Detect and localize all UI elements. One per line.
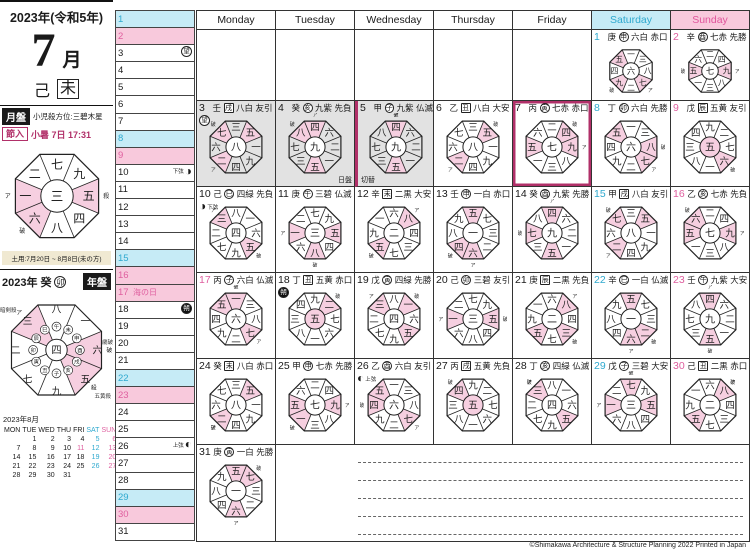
svg-text:一: 一 [231, 294, 241, 305]
copyright-text: ©Shimakawa Architecture & Structure Plan… [530, 542, 746, 549]
svg-text:七: 七 [706, 66, 714, 76]
mini-cal-day: 15 [21, 453, 37, 462]
svg-text:五: 五 [705, 334, 715, 345]
svg-text:三: 三 [626, 401, 636, 412]
svg-text:一: 一 [448, 314, 458, 325]
day-branch-badge: 寅 [382, 275, 392, 285]
svg-text:六: 六 [324, 127, 334, 139]
date-strip-row: 11 [115, 182, 195, 199]
svg-text:二: 二 [245, 501, 255, 512]
mini-calendar-table: MONTUEWEDTHUFRISATSUN1234567891011121314… [3, 426, 117, 480]
date-strip-row: 14 [115, 233, 195, 250]
svg-text:四: 四 [626, 248, 636, 259]
setsu-label: 節入 [2, 127, 28, 141]
day-branch-badge: 卯 [619, 103, 629, 113]
day-branch-badge: 申 [461, 189, 471, 199]
memo-area [276, 445, 750, 542]
svg-text:二: 二 [11, 345, 21, 356]
svg-text:ア: ア [312, 113, 317, 119]
svg-text:九: 九 [217, 328, 227, 340]
svg-text:二: 二 [627, 83, 635, 92]
mini-cal-day: 31 [56, 471, 72, 480]
day-cell-11: 11庚午三碧仏滅七九五四八六一二三破ア [276, 187, 355, 273]
svg-text:一: 一 [627, 50, 635, 59]
svg-text:四: 四 [231, 162, 241, 173]
new-moon-icon: 朔 [278, 287, 289, 298]
date-strip-number: 12 [118, 202, 130, 213]
day-cell-9: 9戊辰五黄友引九二七六一八三四五破 [671, 101, 750, 187]
day-cell-24: 24癸未八白赤口三五一九四二六七八破ア [197, 359, 276, 445]
svg-text:九: 九 [245, 414, 255, 426]
date-strip-row: 21 [115, 353, 195, 370]
svg-text:ア: ア [414, 426, 419, 432]
svg-text:六: 六 [626, 333, 636, 345]
svg-text:破: 破 [493, 121, 498, 128]
svg-text:九: 九 [612, 156, 622, 168]
svg-text:七: 七 [640, 300, 650, 311]
day-cell-31: 31庚寅一白先勝五七三二六四八九一破ア [197, 445, 276, 542]
svg-text:九: 九 [310, 142, 320, 154]
svg-text:四: 四 [606, 142, 616, 153]
mini-cal-day: 2 [37, 435, 55, 444]
svg-text:破: 破 [290, 425, 295, 432]
svg-text:五: 五 [217, 300, 227, 311]
moon-phase-badge: ◐上弦 [357, 373, 376, 384]
moon-phase-label: 下弦 [207, 203, 218, 211]
nine-star-octagon: 八一六五九七二三四破ア [360, 285, 428, 353]
svg-text:一: 一 [290, 228, 300, 239]
svg-text:三: 三 [640, 128, 650, 139]
nine-star-octagon: 三五一九四二六七八破ア [439, 113, 507, 181]
svg-text:一: 一 [533, 300, 543, 311]
date-strip-number: 17 [118, 287, 130, 298]
svg-text:九: 九 [705, 121, 715, 133]
mini-cal-day: 24 [56, 462, 72, 471]
svg-text:七: 七 [454, 128, 464, 139]
day-cell-19: 19戊寅四緑先勝八一六五九七二三四破ア [355, 273, 434, 359]
year-board-header: 2023年 癸 卯 年盤 [2, 273, 111, 290]
holiday-name: 海の日 [133, 287, 157, 298]
svg-text:三: 三 [375, 300, 385, 311]
svg-text:破: 破 [290, 121, 295, 128]
saiha-label: 歳破 [102, 338, 113, 346]
nine-star-octagon: 七九五四八六一二三破ア [439, 285, 507, 353]
svg-text:七: 七 [389, 248, 399, 259]
svg-text:破: 破 [211, 121, 216, 128]
svg-text:三: 三 [533, 243, 543, 254]
day-branch-badge: 未 [224, 361, 234, 371]
day-branch-badge: 寅 [540, 103, 550, 113]
svg-text:一: 一 [296, 415, 306, 426]
svg-text:破: 破 [360, 402, 364, 409]
day-cell-22: 22辛巳一白仏滅五七三二六四八九一破ア [592, 273, 671, 359]
svg-text:六: 六 [705, 379, 715, 391]
date-strip-number: 22 [118, 373, 130, 384]
date-strip-row: 8 [115, 131, 195, 148]
svg-text:二: 二 [217, 157, 227, 168]
svg-text:九: 九 [73, 167, 85, 181]
mini-cal-day: 4 [72, 435, 85, 444]
svg-text:九: 九 [324, 213, 334, 225]
date-strip-number: 8 [118, 133, 130, 144]
svg-text:二: 二 [626, 162, 636, 173]
month-kanji: 月 [62, 45, 81, 72]
svg-text:破: 破 [256, 253, 261, 260]
svg-text:六: 六 [482, 414, 492, 426]
day-cell-25: 25甲申七赤先勝二四九八三一五六七破ア [276, 359, 355, 445]
svg-text:午: 午 [54, 322, 60, 330]
svg-text:八: 八 [50, 221, 62, 235]
date-strip-row: 9 [115, 148, 195, 165]
day-branch-badge: 亥 [303, 103, 313, 113]
svg-text:四: 四 [391, 122, 401, 133]
nine-star-octagon: 二四九八三一五六七破ア [518, 113, 586, 181]
nine-star-octagon: 二四九八三一五六七破ア [676, 199, 744, 267]
svg-text:四: 四 [389, 315, 399, 326]
mini-cal-day: 18 [72, 453, 85, 462]
svg-text:九: 九 [245, 156, 255, 168]
last-quarter-moon-icon: ◑ [199, 201, 206, 212]
svg-text:六: 六 [567, 399, 577, 411]
svg-text:五: 五 [310, 162, 320, 173]
svg-text:二: 二 [640, 329, 650, 340]
moon-phase-label: 上弦 [173, 441, 184, 449]
svg-text:七: 七 [50, 158, 62, 172]
date-strip-row: 3望 [115, 45, 195, 62]
svg-text:六: 六 [389, 400, 399, 412]
mini-cal-day: 9 [37, 444, 55, 453]
svg-text:五: 五 [468, 401, 478, 412]
empty-day-cell [434, 30, 513, 101]
svg-text:四: 四 [640, 415, 650, 426]
svg-text:三: 三 [719, 415, 729, 426]
svg-text:八: 八 [719, 243, 729, 254]
date-strip-number: 2 [118, 31, 130, 42]
day-branch-badge: 午 [303, 189, 313, 199]
svg-text:三: 三 [290, 314, 300, 325]
memo-dashed-line [358, 516, 743, 517]
nine-star-octagon: 一三八七二九四五六破ア [602, 42, 660, 100]
svg-text:九: 九 [527, 313, 537, 325]
svg-text:四: 四 [691, 128, 701, 139]
nine-star-octagon: 二四九八三一五六七破ア [681, 42, 739, 100]
date-strip-number: 23 [118, 390, 130, 401]
svg-text:一: 一 [19, 189, 31, 203]
svg-text:六: 六 [719, 156, 729, 168]
date-strip-number: 30 [118, 509, 130, 520]
svg-text:九: 九 [685, 399, 695, 411]
mini-cal-day: 28 [3, 471, 21, 480]
date-strip-row: 15 [115, 250, 195, 267]
empty-day-cell [197, 30, 276, 101]
year-board-year: 2023年 [2, 274, 37, 290]
svg-text:八: 八 [231, 401, 241, 412]
svg-text:四: 四 [482, 329, 492, 340]
weekday-header-wednesday: Wednesday [355, 11, 434, 30]
svg-text:六: 六 [694, 54, 702, 64]
svg-text:破: 破 [518, 230, 522, 237]
svg-text:六: 六 [211, 399, 221, 411]
day-branch-badge: 戌 [461, 361, 471, 371]
moon-phase-badge: 朔 [181, 303, 192, 314]
svg-text:三: 三 [706, 83, 714, 92]
svg-text:六: 六 [691, 213, 701, 225]
svg-text:破: 破 [681, 68, 685, 75]
svg-text:ア: ア [527, 380, 532, 386]
next-month-mini-calendar: 2023年8月 MONTUEWEDTHUFRISATSUN12345678910… [3, 414, 110, 480]
svg-text:八: 八 [468, 334, 478, 345]
nine-star-octagon: 三五一九四二六七八破ア [202, 371, 270, 439]
date-strip-number: 25 [118, 424, 130, 435]
svg-text:三: 三 [403, 386, 413, 397]
day-branch-badge: 酉 [698, 32, 708, 42]
svg-text:一: 一 [81, 316, 91, 327]
svg-text:六: 六 [409, 313, 419, 325]
svg-text:七: 七 [217, 243, 227, 254]
svg-text:一: 一 [310, 334, 320, 345]
svg-text:九: 九 [389, 333, 399, 345]
svg-text:二: 二 [454, 157, 464, 168]
date-strip-number: 20 [118, 338, 130, 349]
day-branch-badge: 丑 [698, 361, 708, 371]
mini-cal-day [72, 471, 85, 480]
svg-text:二: 二 [705, 208, 715, 219]
svg-text:二: 二 [706, 50, 714, 59]
svg-text:一: 一 [691, 243, 701, 254]
nine-star-octagon: 四六二一五三七八九破ア [362, 113, 430, 181]
svg-text:卯: 卯 [30, 346, 35, 354]
kirikae-caption-left: 日盤 [338, 175, 352, 185]
svg-text:二: 二 [211, 228, 221, 239]
svg-text:ア: ア [707, 285, 712, 291]
svg-text:六: 六 [231, 505, 241, 517]
empty-day-cell [355, 30, 434, 101]
svg-text:未: 未 [66, 326, 72, 334]
day-branch-badge: 亥 [698, 189, 708, 199]
date-strip-row: 12 [115, 199, 195, 216]
svg-text:八: 八 [251, 314, 261, 325]
svg-text:五: 五 [245, 243, 255, 254]
svg-text:五: 五 [245, 128, 255, 139]
svg-text:八: 八 [389, 294, 399, 305]
moon-phase-badge: 望 [181, 46, 192, 57]
date-strip-number: 11 [118, 184, 130, 195]
svg-text:九: 九 [52, 385, 62, 397]
day-cell-1: 1庚申六白赤口一三八七二九四五六破ア [592, 30, 671, 101]
svg-text:九: 九 [547, 228, 557, 240]
day-branch-badge: 酉 [540, 189, 550, 199]
svg-text:一: 一 [245, 214, 255, 225]
divider [0, 269, 113, 270]
date-strip-row: 29 [115, 490, 195, 507]
svg-text:四: 四 [567, 314, 577, 325]
svg-text:三: 三 [468, 122, 478, 133]
svg-text:六: 六 [211, 141, 221, 153]
svg-text:二: 二 [310, 380, 320, 391]
svg-text:三: 三 [310, 229, 320, 240]
date-strip-row: 17海の日 [115, 285, 195, 302]
svg-text:三: 三 [403, 243, 413, 254]
svg-text:二: 二 [411, 142, 421, 153]
svg-text:七: 七 [547, 334, 557, 345]
svg-text:七: 七 [725, 142, 735, 153]
svg-text:酉: 酉 [77, 347, 83, 354]
svg-text:一: 一 [705, 162, 715, 173]
svg-text:破: 破 [730, 167, 735, 174]
date-strip-number: 18 [118, 304, 130, 315]
date-strip-number: 26 [118, 441, 130, 452]
svg-text:九: 九 [390, 142, 400, 154]
nine-star-octagon: 六八四三七五九一二破ア [360, 199, 428, 267]
weekday-header-friday: Friday [513, 11, 592, 30]
svg-text:五: 五 [533, 329, 543, 340]
svg-text:二: 二 [389, 420, 399, 431]
month-stem: 己 [34, 77, 50, 101]
date-strip-number: 10 [118, 167, 130, 178]
svg-text:五: 五 [689, 67, 697, 76]
svg-text:破: 破 [503, 316, 507, 323]
svg-text:七: 七 [640, 157, 650, 168]
svg-text:六: 六 [627, 66, 635, 76]
svg-text:五: 五 [330, 228, 340, 239]
svg-text:ア: ア [740, 231, 744, 237]
day-branch-badge: 戌 [224, 103, 234, 113]
svg-text:二: 二 [324, 300, 334, 311]
day-cell-23: 23壬午九紫大安四六二一五三七八九破ア [671, 273, 750, 359]
date-strip-row: 23 [115, 387, 195, 404]
svg-text:五: 五 [626, 294, 636, 305]
svg-text:破: 破 [628, 371, 633, 377]
svg-text:一: 一 [626, 122, 636, 133]
weekday-header-saturday: Saturday [592, 11, 671, 30]
date-strip-number: 27 [118, 458, 130, 469]
day-branch-badge: 未 [382, 189, 392, 199]
mini-cal-day: 17 [56, 453, 72, 462]
mini-cal-day: 19 [85, 453, 100, 462]
svg-text:五: 五 [527, 142, 537, 153]
svg-text:七: 七 [612, 214, 622, 225]
svg-text:三: 三 [468, 315, 478, 326]
day-cell-12: 12辛未二黒大安六八四三七五九一二破ア [355, 187, 434, 273]
svg-text:七: 七 [290, 142, 300, 153]
day-branch-badge: 亥 [540, 361, 550, 371]
date-strip-row: 10下弦◑ [115, 165, 195, 182]
svg-text:八: 八 [561, 157, 571, 168]
svg-text:破: 破 [233, 285, 238, 291]
mini-cal-header: FRI [72, 426, 85, 435]
svg-text:三: 三 [646, 314, 656, 325]
day-cell-29: 29戊子三碧大安七九五四八六一二三破ア [592, 359, 671, 445]
day-cell-20: 20己卯三碧友引七九五四八六一二三破ア [434, 273, 513, 359]
svg-text:七: 七 [705, 228, 715, 240]
svg-text:三: 三 [245, 300, 255, 311]
svg-text:一: 一 [375, 214, 385, 225]
svg-text:九: 九 [468, 379, 478, 391]
svg-text:二: 二 [296, 214, 306, 225]
date-strip-number: 3 [118, 48, 130, 59]
svg-text:七: 七 [468, 294, 478, 305]
svg-text:破: 破 [106, 346, 112, 354]
svg-text:三: 三 [251, 486, 261, 497]
svg-text:三: 三 [231, 380, 241, 391]
svg-text:九: 九 [725, 227, 735, 239]
svg-text:五: 五 [640, 214, 650, 225]
svg-text:四: 四 [547, 401, 557, 412]
mini-cal-day: 22 [21, 462, 37, 471]
svg-text:殺: 殺 [103, 192, 109, 200]
svg-text:五: 五 [375, 243, 385, 254]
svg-text:二: 二 [527, 400, 537, 411]
day-cell-10: 10己巳四緑先負◑下弦八一六五九七二三四破ア [197, 187, 276, 273]
svg-text:五: 五 [310, 315, 320, 326]
svg-text:三: 三 [217, 214, 227, 225]
svg-text:五: 五 [691, 415, 701, 426]
day-cell-6: 6乙丑八白大安三五一九四二六七八破ア [434, 101, 513, 187]
moon-phase-label: 下弦 [173, 167, 184, 175]
kosatsu-note: 小児殺方位:三碧木星 [33, 111, 103, 122]
moon-phase-badge: 上弦◐ [173, 439, 192, 450]
day-branch-badge: 子 [385, 103, 394, 113]
svg-text:破: 破 [448, 379, 453, 386]
svg-text:一: 一 [468, 229, 478, 240]
mini-cal-day: 16 [37, 453, 55, 462]
svg-text:破: 破 [609, 87, 614, 94]
mini-cal-day: 1 [21, 435, 37, 444]
day-branch-badge: 巳 [224, 189, 234, 199]
svg-text:九: 九 [217, 471, 227, 483]
last-quarter-moon-icon: ◑ [185, 166, 192, 177]
svg-text:五: 五 [231, 466, 241, 477]
svg-text:六: 六 [612, 414, 622, 426]
date-strip-row: 13 [115, 216, 195, 233]
mini-calendar-title: 2023年8月 [3, 414, 110, 425]
nine-star-octagon: 四六二一五三七八九破ア [281, 113, 349, 181]
new-moon-icon: 朔 [181, 303, 192, 314]
day-branch-badge: 寅 [224, 447, 234, 457]
date-strip-number: 5 [118, 82, 130, 93]
mini-cal-day: 25 [72, 462, 85, 471]
mini-cal-header: WED [37, 426, 55, 435]
date-strip-number: 15 [118, 253, 130, 264]
svg-text:二: 二 [725, 314, 735, 325]
svg-text:五: 五 [612, 128, 622, 139]
day-cell-2: 2辛酉七赤先勝二四九八三一五六七破ア [671, 30, 750, 101]
ankensatsu-label: 暗剣殺 [0, 306, 17, 314]
svg-text:破: 破 [414, 293, 419, 300]
svg-text:三: 三 [310, 420, 320, 431]
nine-star-octagon: 九二七六一八三四五破 [676, 113, 744, 181]
nine-star-octagon: 四六二一五三七八九破ア [676, 285, 744, 353]
moon-phase-badge: 下弦◑ [173, 166, 192, 177]
svg-text:六: 六 [626, 142, 636, 154]
svg-text:五: 五 [646, 400, 656, 411]
svg-text:三: 三 [626, 208, 636, 219]
svg-text:七: 七 [639, 79, 647, 88]
date-strip-row: 7 [115, 114, 195, 131]
svg-text:八: 八 [719, 386, 729, 397]
svg-text:二: 二 [547, 122, 557, 133]
date-strip-row: 2 [115, 28, 195, 45]
svg-text:四: 四 [547, 208, 557, 219]
nine-star-octagon: 四六二一五三七八九破ア [518, 199, 586, 267]
svg-text:九: 九 [231, 247, 241, 259]
nine-star-octagon: 六八四三七五九一二破ア [676, 371, 744, 439]
svg-text:申: 申 [74, 334, 79, 342]
svg-text:ア: ア [572, 294, 577, 300]
date-strip-row: 27 [115, 455, 195, 472]
svg-text:四: 四 [369, 400, 379, 411]
svg-text:三: 三 [231, 122, 241, 133]
